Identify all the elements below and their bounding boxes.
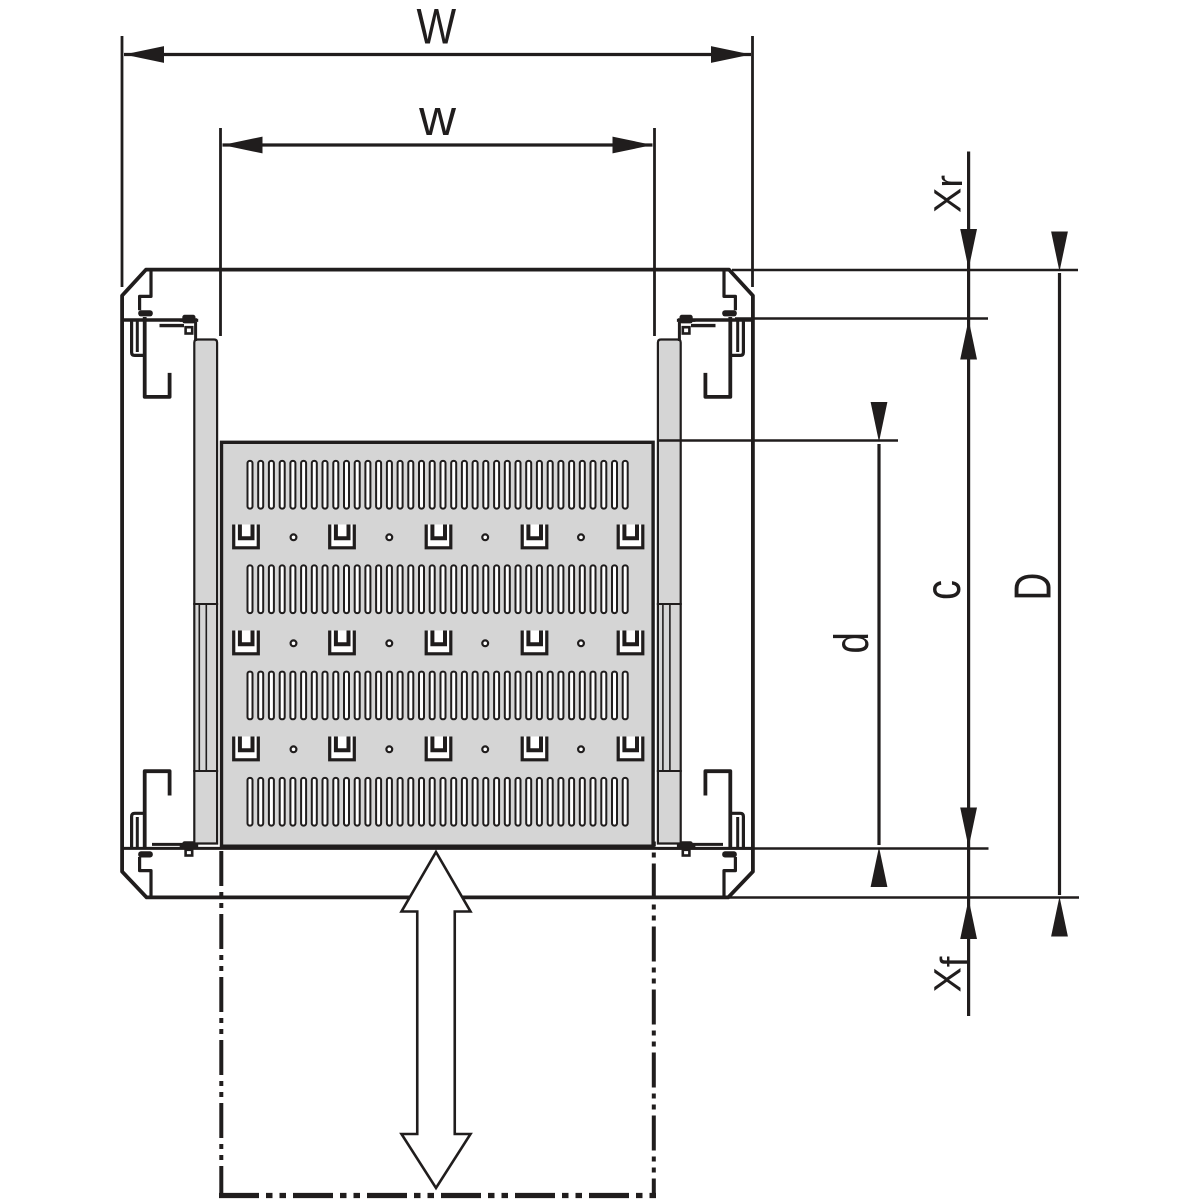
svg-text:w: w xyxy=(418,89,456,146)
svg-text:D: D xyxy=(1004,573,1062,601)
svg-text:W: W xyxy=(416,0,456,54)
svg-text:c: c xyxy=(915,580,971,600)
svg-text:Xr: Xr xyxy=(928,175,972,213)
svg-text:d: d xyxy=(826,632,879,653)
svg-text:Xf: Xf xyxy=(928,956,977,992)
